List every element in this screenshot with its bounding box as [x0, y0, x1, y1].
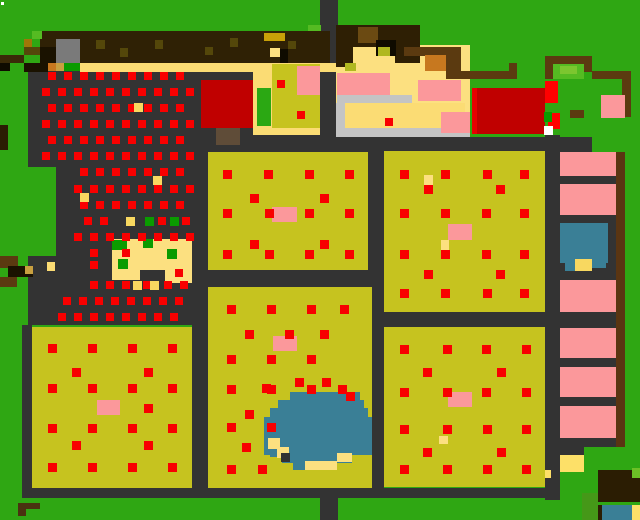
hedge-grass-tuft: [32, 31, 42, 39]
berry-bush[interactable]: [160, 136, 168, 144]
berry-bush[interactable]: [182, 217, 190, 225]
cursor-dot: [1, 2, 4, 5]
berry-bush[interactable]: [170, 185, 178, 193]
crop-dot[interactable]: [320, 330, 329, 339]
crop-dot[interactable]: [345, 209, 354, 218]
crop-dot[interactable]: [72, 441, 81, 450]
berry-bush[interactable]: [154, 88, 162, 96]
berry-bush[interactable]: [80, 201, 88, 209]
stall-2[interactable]: [560, 184, 616, 215]
crop-dot[interactable]: [307, 355, 316, 364]
berry-bush[interactable]: [170, 120, 178, 128]
garden-roof[interactable]: [297, 66, 320, 95]
crop-dot[interactable]: [497, 448, 506, 457]
garden-dot[interactable]: [297, 111, 305, 119]
berry-bush[interactable]: [122, 313, 130, 321]
patch-a[interactable]: [272, 207, 297, 222]
berry-bush[interactable]: [112, 104, 120, 112]
crop-dot[interactable]: [345, 170, 354, 179]
ledge-dark-west: [0, 125, 8, 150]
crop-dot[interactable]: [497, 368, 506, 377]
berry-bush[interactable]: [160, 72, 168, 80]
berry-bush[interactable]: [128, 201, 136, 209]
crop-dot[interactable]: [128, 424, 137, 433]
crop-dot[interactable]: [423, 448, 432, 457]
crop-dot[interactable]: [400, 345, 409, 354]
sand-moss-a: [378, 47, 390, 56]
berry-bush[interactable]: [154, 313, 162, 321]
crop-dot[interactable]: [250, 194, 259, 203]
berry-ripe[interactable]: [126, 217, 135, 226]
fence-line-east: [616, 152, 625, 447]
berry-bush[interactable]: [144, 104, 152, 112]
crop-dot[interactable]: [258, 465, 267, 474]
stall-4[interactable]: [560, 328, 616, 358]
crop-dot[interactable]: [522, 345, 531, 354]
berry-bush[interactable]: [48, 104, 56, 112]
garden-path-bottom: [253, 128, 320, 135]
crop-dot[interactable]: [320, 194, 329, 203]
crop-dot[interactable]: [88, 463, 97, 472]
crop-dot[interactable]: [168, 384, 177, 393]
berry-bush[interactable]: [106, 185, 114, 193]
crop-dot[interactable]: [88, 424, 97, 433]
berry-bush[interactable]: [170, 233, 178, 241]
pond-se[interactable]: [602, 505, 632, 520]
berry-bush[interactable]: [186, 233, 194, 241]
berry-bush[interactable]: [138, 313, 146, 321]
crop-dot[interactable]: [227, 355, 236, 364]
crop-dot[interactable]: [144, 368, 153, 377]
crate-orange[interactable]: [48, 63, 56, 71]
berry-bush[interactable]: [143, 297, 151, 305]
shrub-green: [64, 63, 80, 71]
road-gap-right: [384, 312, 545, 327]
berry-bush[interactable]: [74, 233, 82, 241]
crop-dot[interactable]: [168, 463, 177, 472]
crop-dot[interactable]: [482, 345, 491, 354]
berry-bush[interactable]: [106, 313, 114, 321]
berry-bush[interactable]: [158, 217, 166, 225]
hedge-speck-4: [205, 47, 213, 55]
inn-roof-south[interactable]: [441, 112, 470, 133]
ripe-b1[interactable]: [424, 175, 433, 185]
berry-bush[interactable]: [159, 297, 167, 305]
berry-bush[interactable]: [58, 88, 66, 96]
berry-bush[interactable]: [122, 249, 130, 257]
berry-bush[interactable]: [106, 120, 114, 128]
stone-block[interactable]: [56, 39, 80, 63]
hedge-speck-3: [155, 40, 163, 49]
crop-dot[interactable]: [443, 425, 452, 434]
patch-c[interactable]: [97, 400, 120, 415]
crop-dot[interactable]: [424, 270, 433, 279]
berry-bush[interactable]: [90, 88, 98, 96]
world-map[interactable]: [0, 0, 640, 520]
crop-dot[interactable]: [223, 209, 232, 218]
stand-green-3: [167, 249, 177, 259]
crop-dot[interactable]: [307, 305, 316, 314]
berry-bush[interactable]: [160, 201, 168, 209]
crop-dot[interactable]: [483, 170, 492, 179]
crop-dot[interactable]: [267, 355, 276, 364]
fence-stub: [509, 63, 517, 71]
berry-bush[interactable]: [106, 88, 114, 96]
berry-bush[interactable]: [96, 72, 104, 80]
crop-dot[interactable]: [128, 344, 137, 353]
sapling-b: [18, 509, 26, 516]
stand-tan-crate: [47, 262, 55, 271]
berry-bush[interactable]: [90, 281, 98, 289]
berry-ripe[interactable]: [80, 193, 89, 202]
sand-moss-b: [345, 63, 356, 71]
crop-dot[interactable]: [400, 250, 409, 259]
berry-bush[interactable]: [63, 297, 71, 305]
berry-bush[interactable]: [80, 168, 88, 176]
berry-bush[interactable]: [64, 136, 72, 144]
road-gap-center: [208, 270, 368, 287]
choc-east: [632, 478, 640, 502]
berry-bush[interactable]: [144, 201, 152, 209]
berry-bush[interactable]: [154, 233, 162, 241]
inn-roof-east[interactable]: [418, 80, 461, 101]
crop-dot[interactable]: [227, 305, 236, 314]
berry-bush[interactable]: [80, 104, 88, 112]
berry-bush[interactable]: [90, 233, 98, 241]
garden-dot[interactable]: [277, 80, 285, 88]
choc-block[interactable]: [598, 470, 632, 502]
berry-bush[interactable]: [64, 72, 72, 80]
berry-bush[interactable]: [127, 297, 135, 305]
berry-bush[interactable]: [138, 88, 146, 96]
berry-bush[interactable]: [122, 185, 130, 193]
hedge-speck-1: [96, 40, 105, 49]
crop-dot[interactable]: [482, 388, 491, 397]
crop-dot[interactable]: [441, 289, 450, 298]
berry-bush[interactable]: [96, 168, 104, 176]
berry-bush[interactable]: [144, 136, 152, 144]
crop-dot[interactable]: [285, 330, 294, 339]
berry-bush[interactable]: [144, 168, 152, 176]
crop-dot[interactable]: [223, 250, 232, 259]
crop-dot[interactable]: [423, 368, 432, 377]
berry-bush[interactable]: [112, 201, 120, 209]
crop-dot[interactable]: [242, 443, 251, 452]
berry-bush[interactable]: [74, 185, 82, 193]
crop-dot[interactable]: [483, 465, 492, 474]
berry-bush[interactable]: [74, 88, 82, 96]
pale-green-bit: [632, 468, 640, 478]
crop-dot[interactable]: [144, 404, 153, 413]
crop-dot[interactable]: [295, 378, 304, 387]
crop-dot[interactable]: [441, 170, 450, 179]
crop-dot[interactable]: [245, 330, 254, 339]
crop-dot[interactable]: [48, 463, 57, 472]
berry-bush[interactable]: [42, 88, 50, 96]
berry-bush[interactable]: [122, 88, 130, 96]
fence-c: [446, 71, 517, 79]
berry-bush[interactable]: [58, 313, 66, 321]
crop-dot[interactable]: [265, 250, 274, 259]
crop-dot[interactable]: [400, 465, 409, 474]
garden-dot[interactable]: [385, 118, 393, 126]
berry-bush[interactable]: [128, 72, 136, 80]
crop-dot[interactable]: [340, 305, 349, 314]
berry-bush[interactable]: [128, 168, 136, 176]
berry-bush[interactable]: [176, 201, 184, 209]
berry-bush[interactable]: [160, 168, 168, 176]
berry-bush[interactable]: [90, 313, 98, 321]
berry-bush[interactable]: [112, 168, 120, 176]
fence-crate[interactable]: [425, 55, 446, 71]
crop-dot[interactable]: [245, 410, 254, 419]
crop-dot[interactable]: [520, 170, 529, 179]
berry-bush[interactable]: [122, 152, 130, 160]
crop-dot[interactable]: [227, 385, 236, 394]
berry-bush[interactable]: [176, 136, 184, 144]
crop-dot[interactable]: [400, 289, 409, 298]
berry-bush[interactable]: [186, 120, 194, 128]
crop-dot[interactable]: [322, 378, 331, 387]
crop-dot[interactable]: [520, 209, 529, 218]
berry-bush[interactable]: [176, 104, 184, 112]
crop-dot[interactable]: [522, 465, 531, 474]
barn-west-porch[interactable]: [216, 128, 240, 145]
crop-dot[interactable]: [400, 425, 409, 434]
berry-bush[interactable]: [138, 233, 146, 241]
bush-highlight: [560, 66, 577, 74]
crop-dot[interactable]: [88, 344, 97, 353]
berry-bush[interactable]: [176, 72, 184, 80]
berry-bush[interactable]: [106, 152, 114, 160]
berry-bush[interactable]: [138, 152, 146, 160]
berry-bush[interactable]: [48, 72, 56, 80]
crop-dot[interactable]: [400, 170, 409, 179]
crop-dot[interactable]: [400, 388, 409, 397]
crop-dot[interactable]: [496, 270, 505, 279]
crop-dot[interactable]: [267, 385, 276, 394]
crop-dot[interactable]: [482, 209, 491, 218]
berry-bush[interactable]: [64, 104, 72, 112]
berry-bush[interactable]: [90, 249, 98, 257]
berry-bush[interactable]: [170, 313, 178, 321]
berry-bush[interactable]: [58, 120, 66, 128]
berry-bush[interactable]: [84, 217, 92, 225]
crop-dot[interactable]: [520, 289, 529, 298]
crop-dot[interactable]: [496, 185, 505, 194]
barn-bush: [544, 112, 552, 122]
berry-bush[interactable]: [80, 136, 88, 144]
stand-green-4: [118, 259, 128, 269]
crop-dot[interactable]: [305, 209, 314, 218]
garden-hedge: [257, 88, 271, 126]
bush-frame-right: [584, 56, 592, 72]
berry-bush[interactable]: [154, 152, 162, 160]
berry-bush[interactable]: [128, 136, 136, 144]
berry-sprout[interactable]: [145, 217, 154, 226]
berry-bush[interactable]: [58, 152, 66, 160]
hedge-speck-5: [230, 38, 238, 47]
crop-dot[interactable]: [48, 384, 57, 393]
berry-bush[interactable]: [138, 120, 146, 128]
hedge-west-end: [0, 63, 10, 71]
hedge-amber-bit: [24, 39, 32, 47]
pond-east-edge-b: [592, 262, 606, 268]
berry-bush[interactable]: [111, 297, 119, 305]
berry-bush[interactable]: [138, 185, 146, 193]
pond-center-3[interactable]: [270, 408, 368, 417]
berry-bush[interactable]: [112, 136, 120, 144]
gold-block[interactable]: [264, 33, 285, 41]
crop-dot[interactable]: [443, 388, 452, 397]
berry-bush[interactable]: [90, 152, 98, 160]
crop-dot[interactable]: [441, 209, 450, 218]
berry-ripe[interactable]: [134, 103, 143, 112]
berry-sprout[interactable]: [170, 217, 179, 226]
berry-bush[interactable]: [106, 281, 114, 289]
hedge-west-arm: [0, 55, 24, 63]
berry-bush[interactable]: [176, 168, 184, 176]
crop-dot[interactable]: [265, 209, 274, 218]
inn-roof-west[interactable]: [337, 73, 390, 95]
crop-dot[interactable]: [483, 425, 492, 434]
crop-dot[interactable]: [305, 250, 314, 259]
berry-bush[interactable]: [154, 120, 162, 128]
stall-5[interactable]: [560, 367, 616, 397]
barn-west[interactable]: [201, 80, 256, 128]
crop-dot[interactable]: [522, 388, 531, 397]
berry-bush[interactable]: [96, 136, 104, 144]
berry-bush[interactable]: [42, 120, 50, 128]
pond-rock: [281, 453, 290, 462]
crop-dot[interactable]: [267, 305, 276, 314]
crop-dot[interactable]: [128, 463, 137, 472]
crop-dot[interactable]: [48, 344, 57, 353]
crop-dot[interactable]: [72, 368, 81, 377]
log-tan: [25, 266, 33, 274]
crop-dot[interactable]: [482, 250, 491, 259]
crop-dot[interactable]: [267, 423, 276, 432]
berry-bush[interactable]: [74, 120, 82, 128]
berry-bush[interactable]: [180, 281, 188, 289]
berry-bush[interactable]: [112, 72, 120, 80]
barn-east[interactable]: [472, 88, 545, 134]
berry-bush[interactable]: [96, 104, 104, 112]
berry-bush[interactable]: [80, 72, 88, 80]
berry-ripe[interactable]: [153, 176, 162, 185]
crop-dot[interactable]: [520, 250, 529, 259]
berry-bush[interactable]: [122, 281, 130, 289]
berry-bush[interactable]: [74, 313, 82, 321]
crop-dot[interactable]: [227, 423, 236, 432]
berry-bush[interactable]: [106, 233, 114, 241]
crop-dot[interactable]: [168, 344, 177, 353]
berry-bush[interactable]: [90, 261, 98, 269]
inn-ledge: [337, 95, 412, 103]
crop-dot[interactable]: [424, 185, 433, 194]
berry-bush[interactable]: [186, 185, 194, 193]
berry-bush[interactable]: [95, 297, 103, 305]
pond-east-dock[interactable]: [575, 259, 592, 271]
berry-bush[interactable]: [175, 269, 183, 277]
berry-bush[interactable]: [186, 152, 194, 160]
berry-bush[interactable]: [79, 297, 87, 305]
berry-bush[interactable]: [186, 88, 194, 96]
crop-dot[interactable]: [522, 425, 531, 434]
berry-bush[interactable]: [122, 233, 130, 241]
berry-bush[interactable]: [74, 152, 82, 160]
hedge-speck-2: [120, 48, 128, 57]
stall-6[interactable]: [560, 406, 616, 438]
berry-bush[interactable]: [42, 152, 50, 160]
crop-dot[interactable]: [128, 384, 137, 393]
crop-dot[interactable]: [88, 384, 97, 393]
berry-bush[interactable]: [154, 185, 162, 193]
berry-bush[interactable]: [90, 185, 98, 193]
crop-dot[interactable]: [345, 250, 354, 259]
crop-dot[interactable]: [264, 170, 273, 179]
berry-bush[interactable]: [48, 136, 56, 144]
crop-dot[interactable]: [223, 170, 232, 179]
ripe-b2[interactable]: [441, 240, 449, 250]
berry-bush[interactable]: [144, 72, 152, 80]
ripe-e[interactable]: [439, 436, 448, 444]
stall-3[interactable]: [560, 280, 616, 312]
crop-dot[interactable]: [305, 170, 314, 179]
hedge-dark-bit: [40, 47, 56, 63]
patch-b[interactable]: [448, 224, 472, 240]
berry-bush[interactable]: [160, 104, 168, 112]
berry-bush[interactable]: [100, 217, 108, 225]
berry-ripe[interactable]: [150, 281, 159, 290]
crop-dot[interactable]: [168, 424, 177, 433]
crop-dot[interactable]: [346, 392, 355, 401]
berry-bush[interactable]: [90, 120, 98, 128]
cottage-roof-ne[interactable]: [601, 95, 625, 118]
crop-dot[interactable]: [443, 465, 452, 474]
berry-bush[interactable]: [175, 297, 183, 305]
hedge-tan-bit: [270, 48, 280, 57]
road-left-vertical: [22, 325, 32, 498]
crop-dot[interactable]: [400, 209, 409, 218]
berry-bush[interactable]: [170, 88, 178, 96]
berry-bush[interactable]: [164, 281, 172, 289]
pond-shore-e: [337, 453, 352, 462]
crop-dot[interactable]: [307, 385, 316, 394]
crop-dot[interactable]: [48, 424, 57, 433]
crop-dot[interactable]: [443, 345, 452, 354]
stall-1[interactable]: [560, 152, 616, 176]
crop-dot[interactable]: [441, 250, 450, 259]
log-c: [0, 277, 17, 287]
berry-bush[interactable]: [170, 152, 178, 160]
crop-dot[interactable]: [144, 441, 153, 450]
grass-bulge: [22, 167, 56, 256]
berry-bush[interactable]: [96, 201, 104, 209]
fence-dash: [570, 110, 584, 118]
berry-bush[interactable]: [122, 120, 130, 128]
crop-dot[interactable]: [320, 240, 329, 249]
berry-ripe[interactable]: [133, 281, 142, 290]
barn-door-white[interactable]: [544, 126, 553, 135]
pond-center-2[interactable]: [278, 400, 364, 408]
road-bottom-band: [22, 488, 560, 498]
crop-dot[interactable]: [227, 465, 236, 474]
market-stand-west[interactable]: [112, 270, 140, 280]
grass-corner-se: [584, 447, 625, 470]
crop-dot[interactable]: [250, 240, 259, 249]
crop-dot[interactable]: [483, 289, 492, 298]
